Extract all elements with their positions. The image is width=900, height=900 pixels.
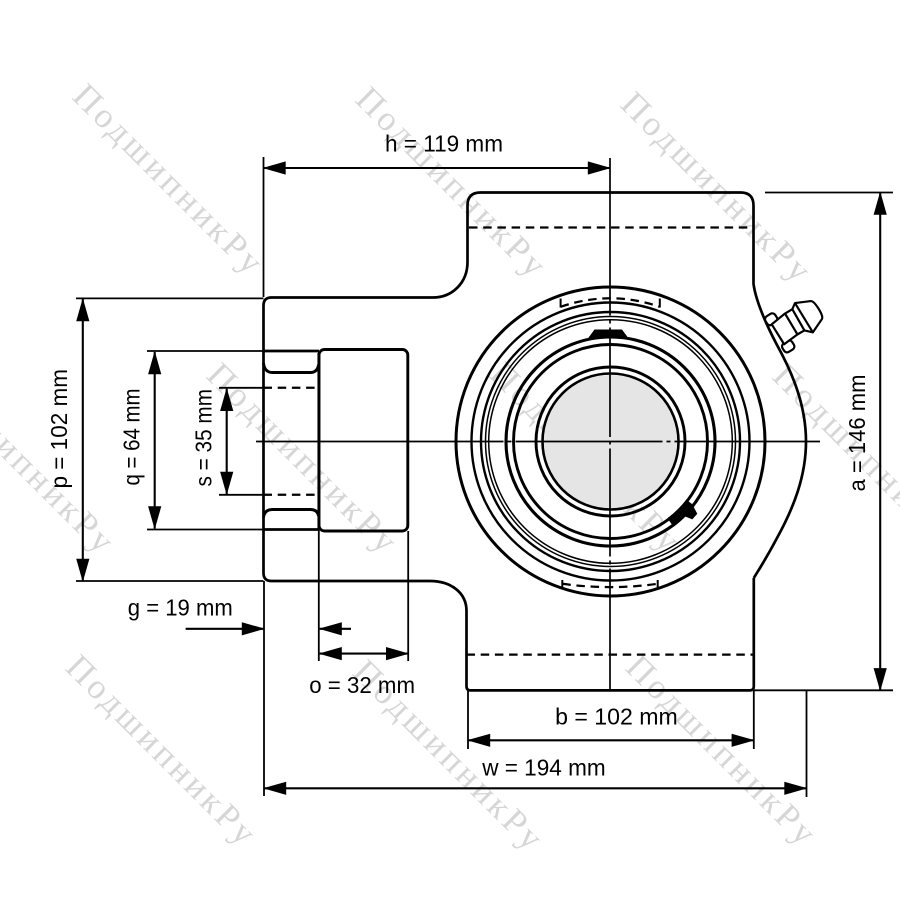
svg-text:o = 32 mm: o = 32 mm (309, 672, 415, 698)
svg-text:q = 64 mm: q = 64 mm (119, 389, 145, 486)
svg-text:h = 119 mm: h = 119 mm (385, 131, 503, 157)
svg-text:a = 146 mm: a = 146 mm (844, 375, 870, 492)
svg-text:s = 35 mm: s = 35 mm (191, 389, 217, 487)
svg-text:w = 194 mm: w = 194 mm (481, 754, 605, 780)
svg-text:p = 102 mm: p = 102 mm (46, 369, 72, 489)
svg-text:b = 102 mm: b = 102 mm (555, 704, 678, 730)
svg-text:g = 19 mm: g = 19 mm (128, 595, 233, 621)
